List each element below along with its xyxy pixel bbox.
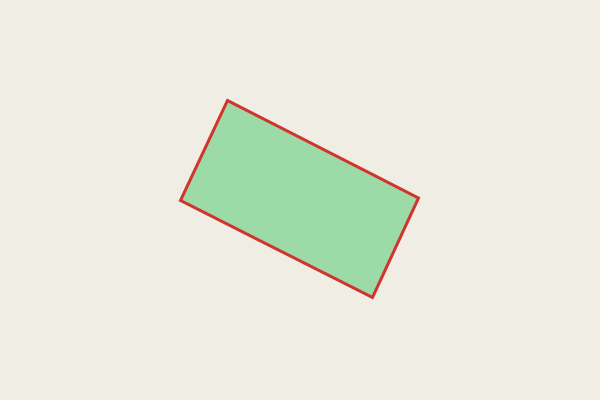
shape-layer — [0, 0, 600, 400]
drawing-canvas — [0, 0, 600, 400]
